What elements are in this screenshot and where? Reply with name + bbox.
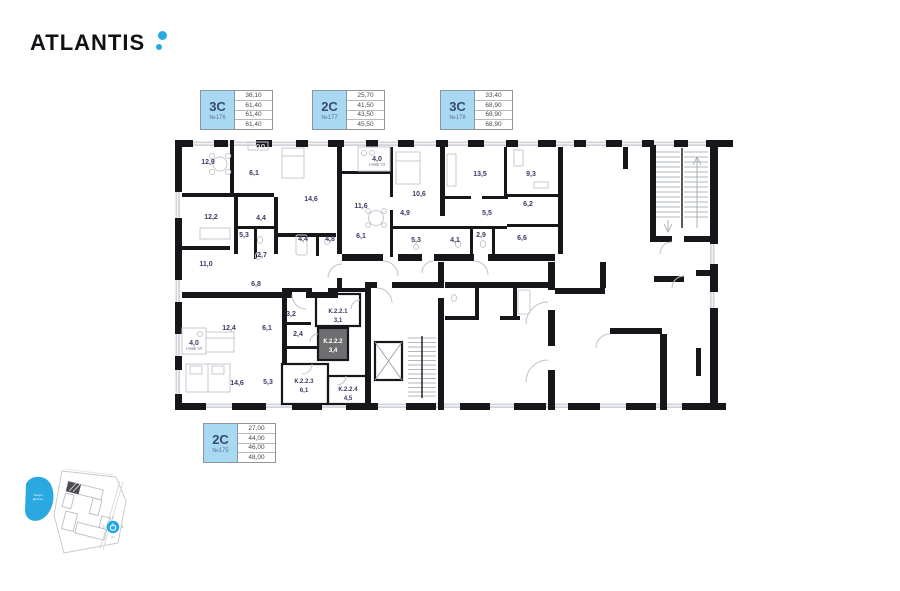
unit-type: 2С: [212, 433, 229, 446]
unit-card-175[interactable]: 2С №175 27,00 44,00 46,00 48,00: [203, 423, 276, 463]
room-area-label: 13,5: [473, 171, 487, 178]
room-area-label: 11,0: [199, 261, 212, 268]
room-area-label: 11,6: [354, 203, 367, 210]
compass-west: З: [103, 525, 105, 529]
furniture-wardrobe: [514, 150, 523, 166]
room-area-label: 5,3: [239, 232, 249, 239]
unit-areas: 27,00 44,00 46,00 48,00: [238, 424, 275, 462]
unit-area-value: 27,00: [238, 424, 275, 434]
storage-name-label: К.2.2.3: [294, 378, 314, 385]
storage-area-label: 3,1: [334, 317, 343, 324]
furniture-sofa: [200, 228, 230, 239]
room-area-label: 5,3: [411, 237, 421, 244]
room-area-label: 2,7: [257, 252, 267, 259]
furniture-bed: [282, 148, 304, 178]
highlighted-building-section[interactable]: [66, 481, 81, 494]
unit-area-value: 25,70: [347, 91, 384, 101]
logo-dot-small-icon: [156, 44, 162, 50]
unit-type-cell: 2С №175: [204, 424, 238, 462]
unit-areas: 33,40 68,90 68,90 68,90: [475, 91, 512, 129]
unit-area-value: 48,00: [238, 453, 275, 462]
compass: С В Ю З: [103, 516, 124, 540]
furniture-bathtub: [518, 290, 530, 314]
storage-name-label: К.2.2.1: [328, 308, 348, 315]
unit-number: №176: [209, 115, 225, 121]
room-area-label: 3,2: [286, 311, 296, 318]
unit-area-value: 41,50: [347, 101, 384, 111]
logo-wordmark: ATLANTIS: [30, 30, 145, 55]
unit-card-177[interactable]: 2С №177 25,70 41,50 43,50 45,50: [312, 90, 385, 130]
logo-dot-large-icon: [158, 31, 167, 40]
unit-area-value: 61,40: [235, 101, 272, 111]
interior-walls: [182, 140, 716, 410]
room-area-label: 9,3: [526, 171, 536, 178]
room-area-label: 4,4: [256, 215, 266, 222]
room-area-labels: 12,96,112,24,45,32,711,014,64,44,84,0с к…: [186, 156, 536, 402]
unit-number: №175: [212, 448, 228, 454]
room-area-label: 6,1: [249, 170, 259, 177]
room-area-label: 12,4: [222, 325, 236, 332]
room-area-label: 10,6: [412, 191, 426, 198]
unit-area-value: 36,10: [235, 91, 272, 101]
exterior-walls: [175, 140, 733, 410]
furniture-bed: [206, 332, 234, 352]
stairwell-top-right: [656, 148, 708, 232]
furniture-toilet: [257, 237, 262, 244]
furniture-table: [369, 211, 384, 226]
site-minimap: Озеро Долгое: [20, 463, 140, 568]
lake-label-line2: Долгое: [33, 497, 43, 501]
unit-area-value: 61,40: [235, 111, 272, 121]
room-area-label: 2,9: [476, 232, 486, 239]
unit-type: 2С: [321, 100, 338, 113]
furniture-toilet: [451, 295, 456, 302]
compass-circle: [107, 521, 119, 533]
compass-east: В: [121, 525, 123, 529]
unit-area-value: 46,00: [238, 444, 275, 454]
floor-selector-page: ATLANTIS 3С №176 36,10 61,40 61,40 61,40…: [0, 0, 900, 591]
door-arcs: [292, 242, 684, 385]
furniture-table: [213, 157, 227, 171]
room-area-label: 6,1: [356, 233, 366, 240]
room-area-label: 5,3: [263, 379, 273, 386]
storage-area-label: 4,5: [344, 395, 353, 402]
room-coef-note: с коэф. 0,5: [369, 163, 385, 167]
room-area-label: 4,8: [325, 236, 335, 243]
unit-number: №177: [321, 115, 337, 121]
room-area-label: 12,2: [204, 214, 218, 221]
furniture-sofa: [447, 154, 456, 186]
unit-type-cell: 3С №176: [201, 91, 235, 129]
unit-area-value: 61,40: [235, 120, 272, 129]
unit-area-value: 68,90: [475, 101, 512, 111]
unit-type: 3С: [449, 100, 466, 113]
unit-area-value: 68,90: [475, 120, 512, 129]
buildings: [61, 481, 110, 540]
floor-plan: 12,96,112,24,45,32,711,014,64,44,84,0с к…: [170, 136, 740, 418]
room-area-label: 4,9: [400, 210, 410, 217]
unit-card-176[interactable]: 3С №176 36,10 61,40 61,40 61,40: [200, 90, 273, 130]
unit-type-cell: 3С №178: [441, 91, 475, 129]
furniture-bed: [396, 152, 420, 184]
storage-area-label: 6,1: [300, 387, 309, 394]
room-area-label: 4,1: [450, 237, 460, 244]
unit-area-value: 43,50: [347, 111, 384, 121]
room-area-label: 6,2: [523, 201, 533, 208]
furniture-sink: [414, 245, 419, 250]
unit-area-value: 68,90: [475, 111, 512, 121]
room-area-label: 12,9: [201, 159, 215, 166]
room-area-label: 4,4: [298, 236, 308, 243]
unit-areas: 36,10 61,40 61,40 61,40: [235, 91, 272, 129]
room-area-label: 6,8: [251, 281, 261, 288]
unit-area-value: 33,40: [475, 91, 512, 101]
room-area-label: 5,5: [482, 210, 492, 217]
compass-south: Ю: [111, 536, 115, 540]
room-area-label: 6,1: [262, 325, 272, 332]
room-area-label: 14,6: [230, 380, 244, 387]
storage-name-label: К.2.2.2: [323, 338, 343, 345]
unit-type-cell: 2С №177: [313, 91, 347, 129]
central-core: [375, 336, 436, 398]
unit-number: №178: [449, 115, 465, 121]
compass-north: С: [112, 516, 115, 520]
atlantis-logo[interactable]: ATLANTIS: [30, 30, 180, 60]
unit-areas: 25,70 41,50 43,50 45,50: [347, 91, 384, 129]
unit-area-value: 44,00: [238, 434, 275, 444]
unit-card-178[interactable]: 3С №178 33,40 68,90 68,90 68,90: [440, 90, 513, 130]
storage-area-label: 3,4: [329, 347, 338, 354]
furniture-desk: [534, 182, 548, 188]
room-area-label: 6,6: [517, 235, 527, 242]
unit-type: 3С: [209, 100, 226, 113]
room-area-label: 14,6: [304, 196, 318, 203]
unit-area-value: 45,50: [347, 120, 384, 129]
room-coef-note: с коэф. 0,5: [186, 347, 202, 351]
storage-name-label: К.2.2.4: [338, 386, 358, 393]
room-area-label: 2,4: [293, 331, 303, 338]
window-bands: [175, 140, 733, 410]
furniture-toilet: [480, 241, 485, 248]
